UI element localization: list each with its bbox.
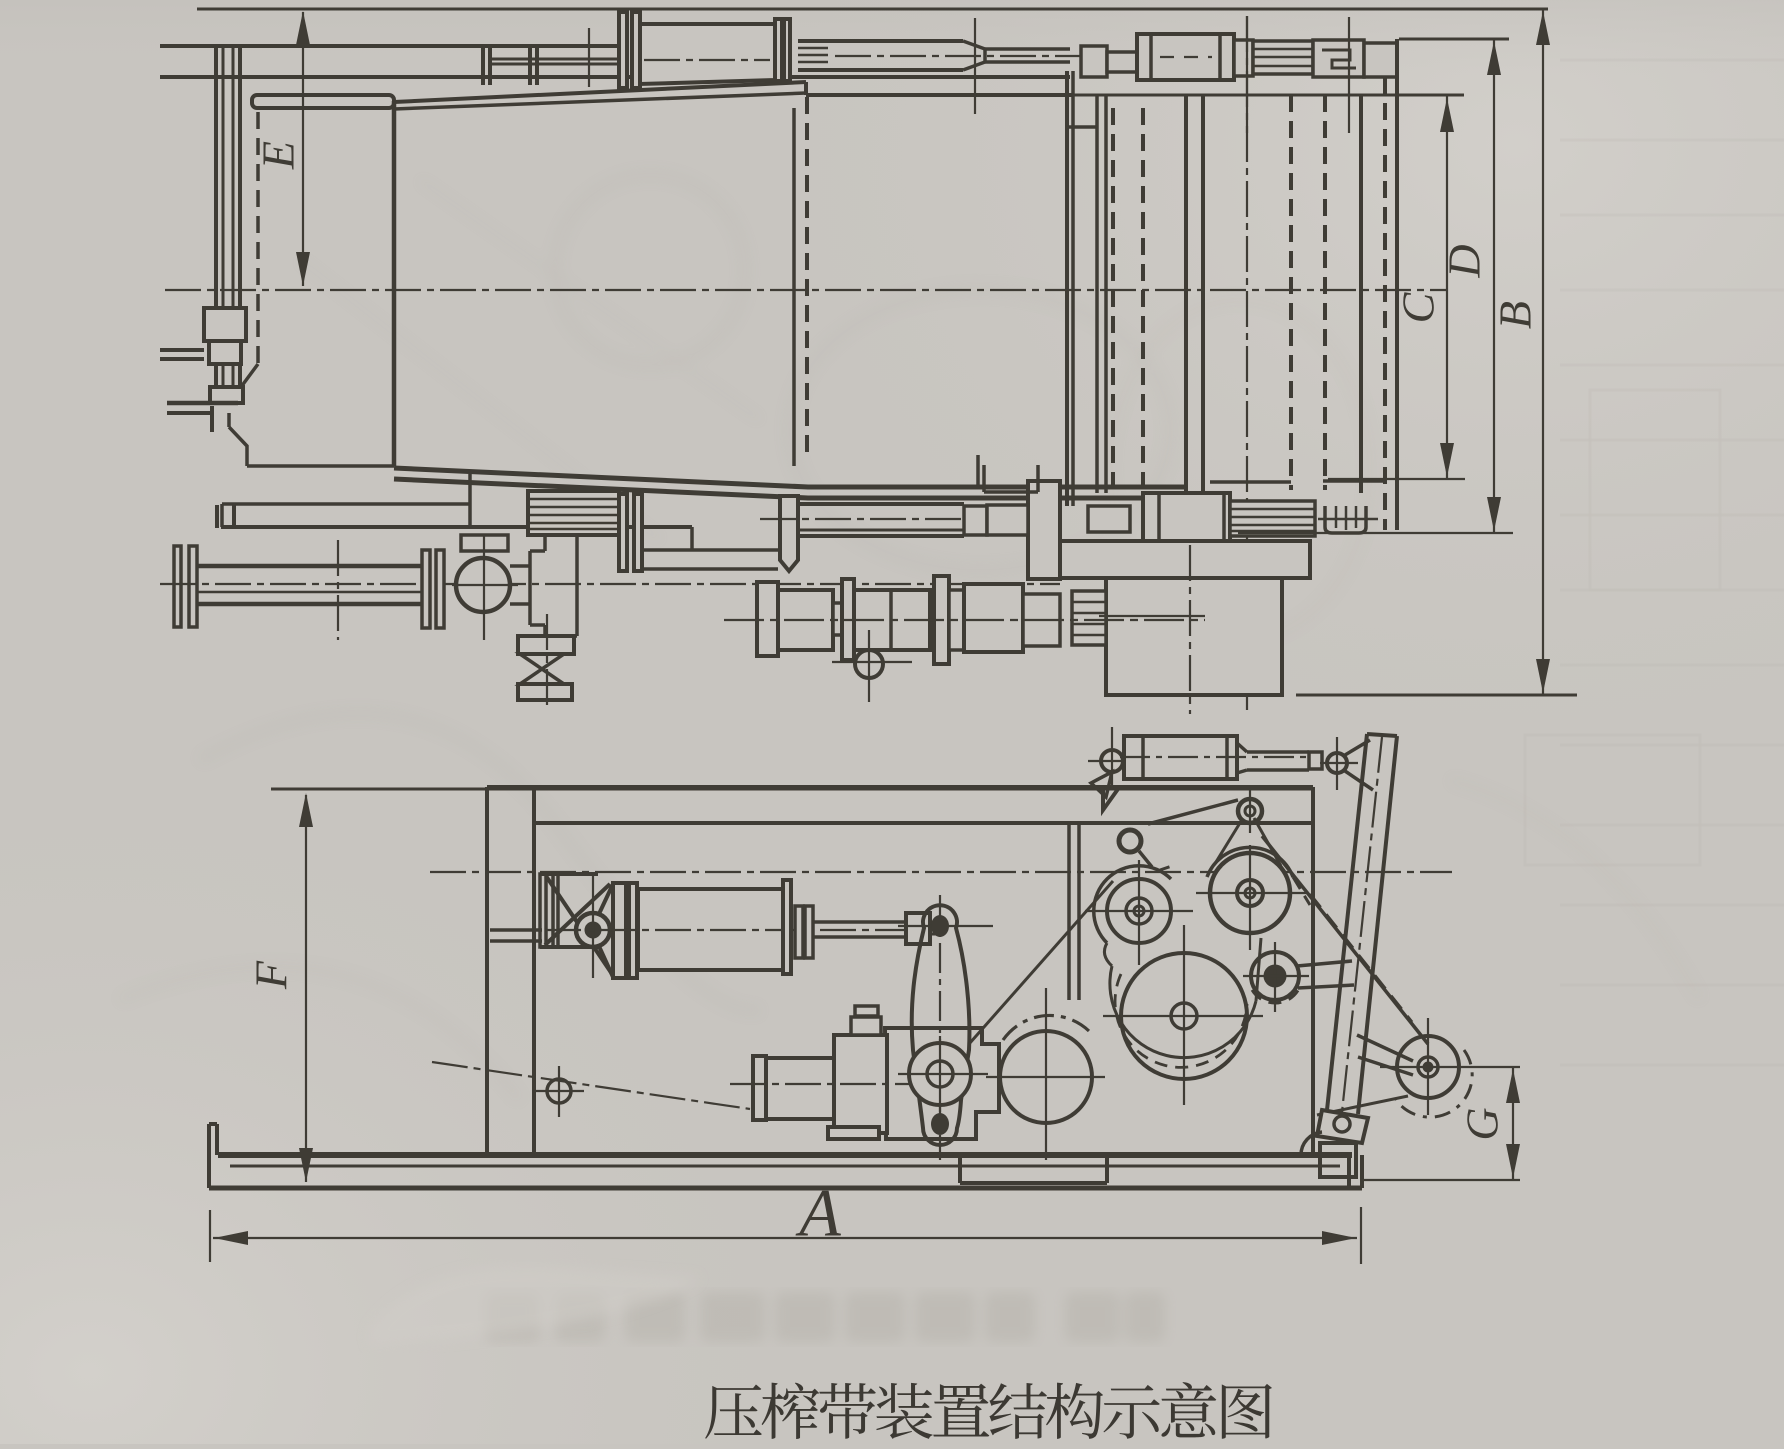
svg-text:B: B <box>1490 301 1541 329</box>
svg-text:A: A <box>795 1175 841 1251</box>
svg-text:E: E <box>253 141 304 170</box>
svg-text:D: D <box>1439 244 1490 278</box>
svg-text:C: C <box>1393 291 1444 323</box>
svg-text:G: G <box>1457 1107 1508 1140</box>
svg-text:F: F <box>246 960 297 990</box>
